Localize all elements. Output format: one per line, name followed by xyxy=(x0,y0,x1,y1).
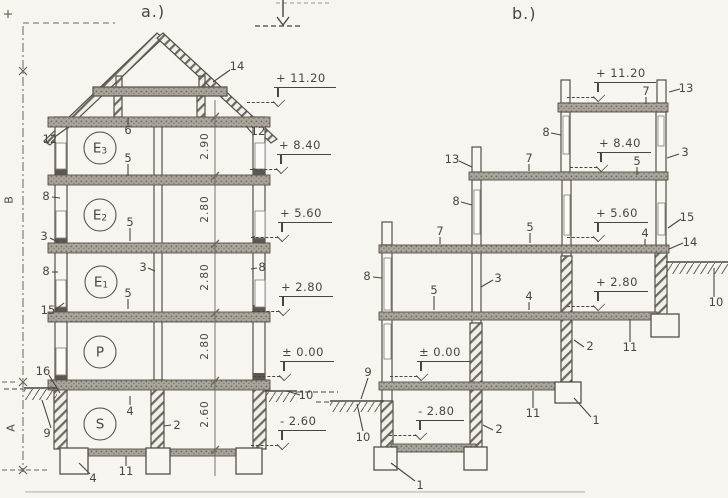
wall-basement xyxy=(655,253,667,315)
roof-post xyxy=(197,96,205,117)
callout-label: 13 xyxy=(445,152,460,166)
level-marker-line xyxy=(250,169,277,170)
callout-label: 7 xyxy=(642,84,649,98)
level-marker-line xyxy=(247,102,274,103)
room-label: P xyxy=(84,336,117,369)
room-letter: P xyxy=(96,344,104,360)
callout-label: 12 xyxy=(251,124,266,138)
level-marker-line xyxy=(389,435,416,436)
callout-label: 3 xyxy=(40,229,47,243)
room-letter-index: 2 xyxy=(101,213,107,223)
level-value: + 8.40 xyxy=(277,138,331,155)
level-marker: - 2.80 xyxy=(416,404,464,421)
callout-label: 3 xyxy=(681,145,688,159)
dimension-label: 2.80 xyxy=(199,195,211,222)
callout-label: 1 xyxy=(416,478,423,492)
level-marker: + 8.40 xyxy=(597,136,651,153)
callout-label: 8 xyxy=(363,269,370,283)
dimension-label: 2.80 xyxy=(199,332,211,359)
level-marker: + 8.40 xyxy=(277,138,331,155)
scan-artifact-line xyxy=(25,491,585,493)
room-letter-index: 1 xyxy=(102,280,108,290)
callout-label: 3 xyxy=(494,271,501,285)
level-marker-line xyxy=(251,237,278,238)
roof-post-stub xyxy=(199,76,205,87)
callout-label: 11 xyxy=(526,406,541,420)
callout-label: 7 xyxy=(436,224,443,238)
level-marker-line xyxy=(567,306,594,307)
callout-label: 3 xyxy=(139,260,146,274)
level-marker: ± 0.00 xyxy=(280,345,334,362)
parapet xyxy=(472,147,481,172)
callout-label: 10 xyxy=(356,430,371,444)
dimension-label: 2.80 xyxy=(199,263,211,290)
level-marker-line xyxy=(252,311,279,312)
callout-label: 8 xyxy=(258,260,265,274)
callout-label: 15 xyxy=(680,210,695,224)
level-value: - 2.60 xyxy=(278,414,326,431)
callout-label: 5 xyxy=(430,283,437,297)
callout-label: 4 xyxy=(641,226,648,240)
level-marker-line xyxy=(251,445,278,446)
callout-label: 9 xyxy=(43,426,50,440)
room-letter-index: 3 xyxy=(101,146,107,156)
callout-label: 13 xyxy=(679,81,694,95)
callout-label: 12 xyxy=(43,132,58,146)
level-marker-line xyxy=(253,376,280,377)
callout-label: 4 xyxy=(126,404,133,418)
level-value: + 11.20 xyxy=(594,66,656,83)
level-marker-line xyxy=(567,97,594,98)
axis-letter: B xyxy=(3,196,16,204)
parapet xyxy=(657,80,666,103)
room-letter: E xyxy=(93,140,102,156)
top-cut-level-marker xyxy=(255,0,332,26)
level-value: - 2.80 xyxy=(416,404,464,421)
level-value: + 2.80 xyxy=(279,280,333,297)
parapet xyxy=(382,222,392,245)
section-title: b.) xyxy=(512,4,536,23)
callout-label: 8 xyxy=(542,125,549,139)
room-label: E1 xyxy=(85,266,118,299)
callout-label: 16 xyxy=(36,364,51,378)
callout-label: 8 xyxy=(42,264,49,278)
callout-label: 2 xyxy=(495,422,502,436)
room-label: E2 xyxy=(84,199,117,232)
roof-post xyxy=(114,96,122,117)
level-value: + 8.40 xyxy=(597,136,651,153)
callout-label: 1 xyxy=(592,413,599,427)
callout-label: 5 xyxy=(124,151,131,165)
room-label: S xyxy=(84,408,117,441)
callout-label: 8 xyxy=(452,194,459,208)
axis-letter: A xyxy=(5,424,18,432)
callout-label: 10 xyxy=(709,295,724,309)
level-value: + 5.60 xyxy=(278,206,332,223)
level-marker: + 2.80 xyxy=(279,280,333,297)
collar-beam xyxy=(93,87,227,96)
callout-label: 7 xyxy=(525,151,532,165)
callout-label: 8 xyxy=(42,189,49,203)
level-marker-line xyxy=(570,167,597,168)
callout-label: 2 xyxy=(586,339,593,353)
callout-label: 11 xyxy=(623,340,638,354)
scanned-drawing-page: a.)+ 11.20+ 8.40+ 5.60+ 2.80± 0.00- 2.60… xyxy=(0,0,728,498)
level-marker: + 5.60 xyxy=(278,206,332,223)
level-marker: + 11.20 xyxy=(274,71,336,88)
dimension-label: 2.60 xyxy=(199,400,211,427)
level-value: + 2.80 xyxy=(594,275,648,292)
room-letter: S xyxy=(96,416,105,432)
callout-label: 9 xyxy=(364,365,371,379)
dimension-label: 2.90 xyxy=(199,132,211,159)
level-marker-line xyxy=(567,237,594,238)
callout-label: 5 xyxy=(126,215,133,229)
level-marker: + 5.60 xyxy=(594,206,648,223)
callout-label: 5 xyxy=(633,154,640,168)
level-value: ± 0.00 xyxy=(417,345,471,362)
callout-label: 5 xyxy=(124,286,131,300)
callout-label: 14 xyxy=(230,59,245,73)
callout-label: 4 xyxy=(525,289,532,303)
level-marker: ± 0.00 xyxy=(417,345,471,362)
level-marker-line xyxy=(390,376,417,377)
callout-label: 2 xyxy=(173,418,180,432)
callout-label: 5 xyxy=(526,220,533,234)
callout-label: 14 xyxy=(683,235,698,249)
callout-label: 10 xyxy=(299,388,314,402)
callout-label: 4 xyxy=(89,471,96,485)
level-value: ± 0.00 xyxy=(280,345,334,362)
roof-post-stub xyxy=(116,76,122,87)
callout-label: 6 xyxy=(124,123,131,137)
level-value: + 11.20 xyxy=(274,71,336,88)
level-marker: + 2.80 xyxy=(594,275,648,292)
level-marker: + 11.20 xyxy=(594,66,656,83)
level-value: + 5.60 xyxy=(594,206,648,223)
callout-label: 11 xyxy=(119,464,134,478)
room-letter: E xyxy=(93,207,102,223)
room-letter: E xyxy=(94,274,103,290)
section-a-structure xyxy=(44,33,277,474)
callout-label: 15 xyxy=(41,303,56,317)
parapet xyxy=(561,80,570,103)
room-label: E3 xyxy=(84,132,117,165)
section-title: a.) xyxy=(141,2,165,21)
level-marker: - 2.60 xyxy=(278,414,326,431)
